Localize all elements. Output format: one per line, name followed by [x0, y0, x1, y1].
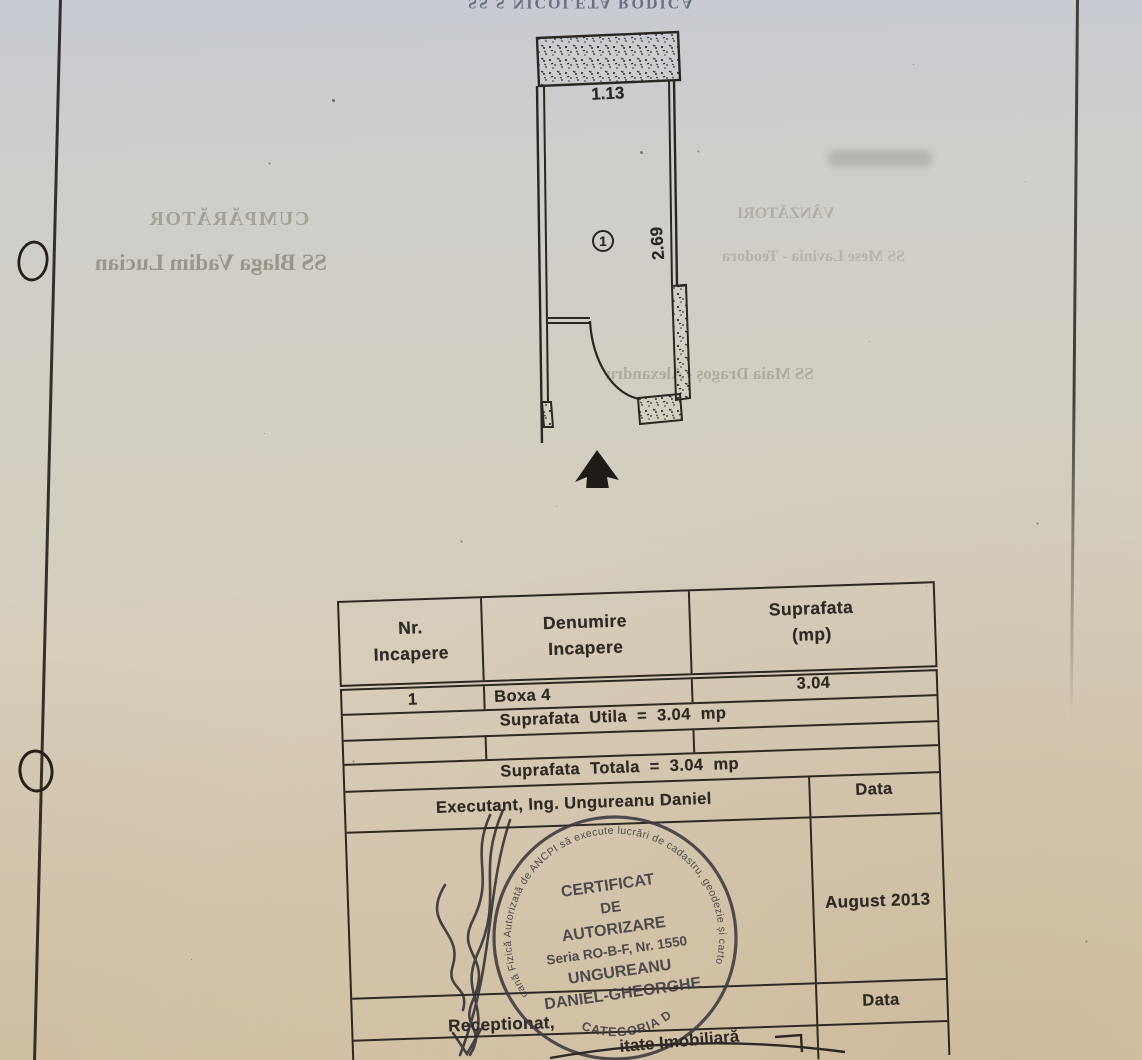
cell-room-name: Boxa 4 — [494, 686, 551, 707]
stamp-line2: DE — [599, 898, 622, 918]
bleedthrough-top-name: SS S NICOLETA RODICA — [468, 0, 695, 11]
page-left-edge-line — [33, 0, 62, 1060]
punch-hole-top — [14, 237, 54, 287]
stamp-line6: DANIEL-GHEORGHE — [543, 974, 702, 1013]
bottom-fragment-text: itate Imobiliară — [619, 1028, 741, 1056]
data-label: Data — [808, 778, 940, 801]
plan-width-dim: 1.13 — [591, 83, 625, 103]
room-number: 1 — [599, 234, 607, 249]
col-header-suprafata: Suprafata (mp) — [688, 591, 935, 652]
date-value: August 2013 — [812, 889, 944, 913]
plan-height-dim: 2.69 — [647, 226, 668, 260]
scanned-document: SS S NICOLETA RODICA CUMPĂRĂTOR SS Blaga… — [0, 0, 1142, 1060]
door-swing-arc — [590, 321, 640, 399]
door-leaf — [548, 318, 590, 323]
round-stamp: Persoană Fizică Autorizată de ANCPI să e… — [468, 791, 762, 1060]
bottom-wall — [638, 394, 682, 424]
table-header-box: Nr. Incapere Denumire Incapere Suprafata… — [337, 581, 938, 687]
bleedthrough-buyer-name: SS Blaga Vadim Lucian — [95, 250, 327, 276]
right-wall-lower — [672, 285, 690, 400]
col-header-denumire: Denumire Incapere — [480, 605, 690, 664]
floor-plan: 1.13 1 2.69 — [500, 18, 700, 488]
dust-specks — [332, 99, 335, 102]
bleedthrough-seller-heading: VÂNZĂTORI — [737, 205, 835, 223]
left-wall-end — [542, 402, 553, 427]
stamp-line1: CERTIFICAT — [560, 871, 656, 901]
data-label-2: Data — [815, 989, 947, 1012]
faint-bleed-smudge — [828, 150, 932, 167]
page-right-edge-line — [1070, 0, 1079, 720]
bottom-stamp-fragment: itate Imobiliară — [545, 1028, 875, 1060]
bleedthrough-seller-name: SS Mese Lavinia - Teodora — [722, 248, 905, 266]
punch-hole-bottom — [14, 745, 60, 799]
top-wall — [537, 32, 680, 86]
bleedthrough-buyer-heading: CUMPĂRĂTOR — [148, 208, 309, 231]
north-arrow-icon — [575, 450, 619, 488]
col-header-nr: Nr. Incapere — [340, 612, 483, 669]
cell-room-area: 3.04 — [691, 670, 936, 697]
cell-room-nr: 1 — [342, 688, 484, 712]
